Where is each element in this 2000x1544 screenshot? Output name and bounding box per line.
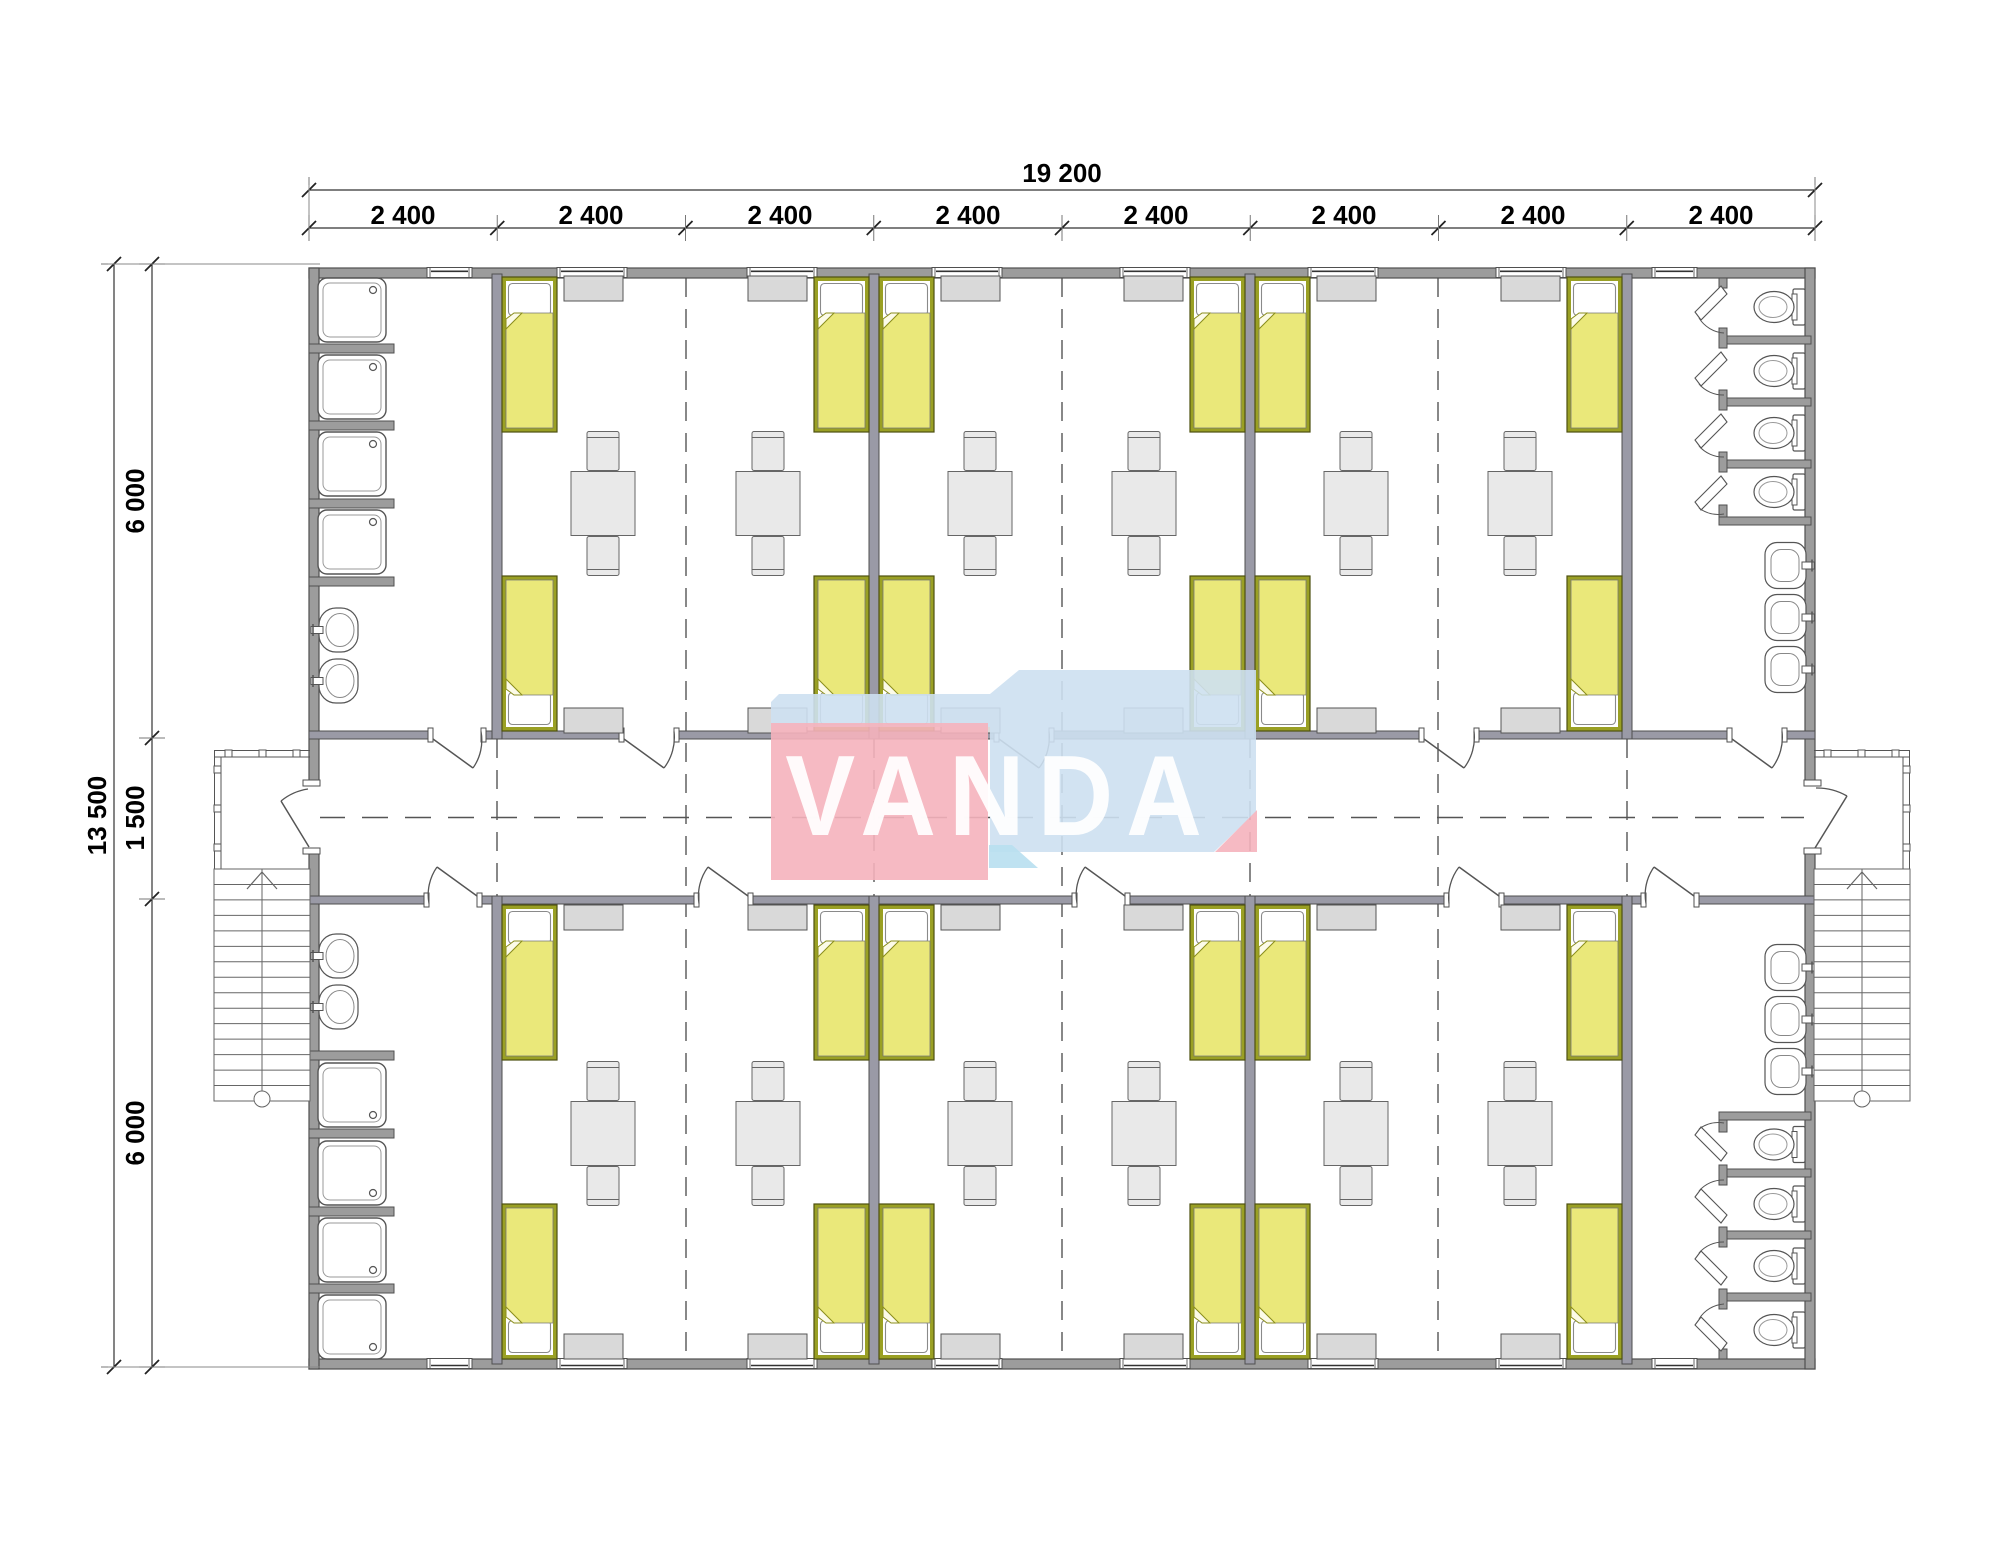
svg-text:19 200: 19 200 xyxy=(1022,158,1102,188)
svg-text:2 400: 2 400 xyxy=(370,200,435,230)
svg-text:2 400: 2 400 xyxy=(1311,200,1376,230)
svg-text:1 500: 1 500 xyxy=(120,785,150,850)
svg-text:2 400: 2 400 xyxy=(1500,200,1565,230)
svg-text:13 500: 13 500 xyxy=(82,776,112,856)
svg-text:2 400: 2 400 xyxy=(747,200,812,230)
svg-text:2 400: 2 400 xyxy=(935,200,1000,230)
svg-text:VANDA: VANDA xyxy=(785,733,1214,860)
svg-text:2 400: 2 400 xyxy=(1688,200,1753,230)
svg-text:2 400: 2 400 xyxy=(558,200,623,230)
svg-text:6 000: 6 000 xyxy=(120,468,150,533)
svg-text:6 000: 6 000 xyxy=(120,1100,150,1165)
svg-text:2 400: 2 400 xyxy=(1123,200,1188,230)
